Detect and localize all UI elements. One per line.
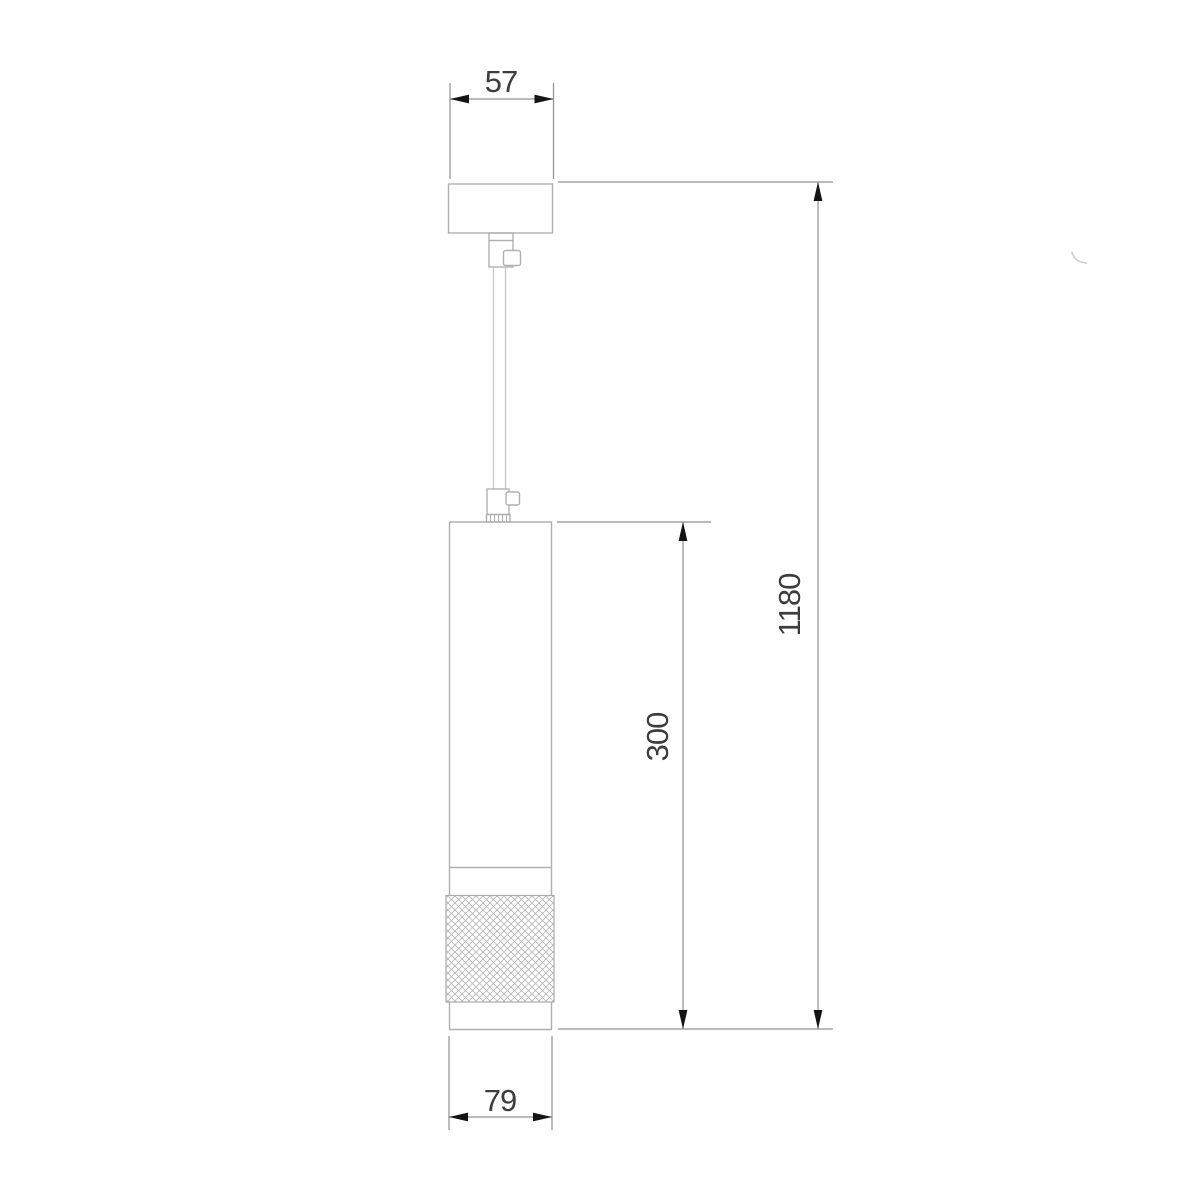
arrowhead-bottom bbox=[814, 1010, 823, 1029]
cord-grip-lower-ribs bbox=[491, 515, 507, 523]
suspension-cable bbox=[494, 267, 506, 489]
ceiling-canopy bbox=[449, 184, 553, 233]
knurled-ring bbox=[446, 896, 554, 1003]
arrowhead-left bbox=[450, 95, 469, 104]
cord-grip-upper-nub bbox=[504, 251, 521, 266]
arrowhead-right bbox=[533, 1113, 552, 1122]
arrowhead-top bbox=[679, 522, 688, 541]
dim-label-overall-drop: 1180 bbox=[772, 573, 807, 636]
cord-grip-lower-nub bbox=[506, 492, 520, 505]
arrowhead-right bbox=[535, 95, 554, 104]
pendant-lamp-outline bbox=[446, 184, 554, 1030]
lamp-body-outline bbox=[450, 522, 552, 896]
lamp-body bbox=[450, 522, 552, 896]
arrowhead-bottom bbox=[679, 1010, 688, 1029]
stray-mark bbox=[1072, 253, 1087, 264]
bottom-ring bbox=[450, 1002, 552, 1030]
dimension-body-height: 300 bbox=[557, 522, 711, 1029]
drawing-canvas: 57 1180 300 79 bbox=[0, 0, 1200, 1200]
bottom-ring-outline bbox=[450, 1002, 552, 1030]
pendant-lamp-technical-drawing: 57 1180 300 79 bbox=[0, 0, 1200, 1200]
dimension-body-diameter: 79 bbox=[449, 1036, 552, 1130]
dimension-overall-drop: 1180 bbox=[558, 182, 833, 1029]
cord-grip-upper bbox=[489, 233, 521, 267]
arrowhead-left bbox=[449, 1113, 468, 1122]
dim-label-body-height: 300 bbox=[640, 712, 675, 761]
dim-label-canopy-width: 57 bbox=[485, 64, 517, 99]
dimension-canopy-width: 57 bbox=[450, 64, 554, 179]
dim-label-body-diameter: 79 bbox=[484, 1083, 516, 1118]
arrowhead-top bbox=[814, 182, 823, 201]
cord-grip-lower bbox=[487, 489, 520, 522]
knurled-ring-hatch bbox=[446, 896, 554, 1003]
